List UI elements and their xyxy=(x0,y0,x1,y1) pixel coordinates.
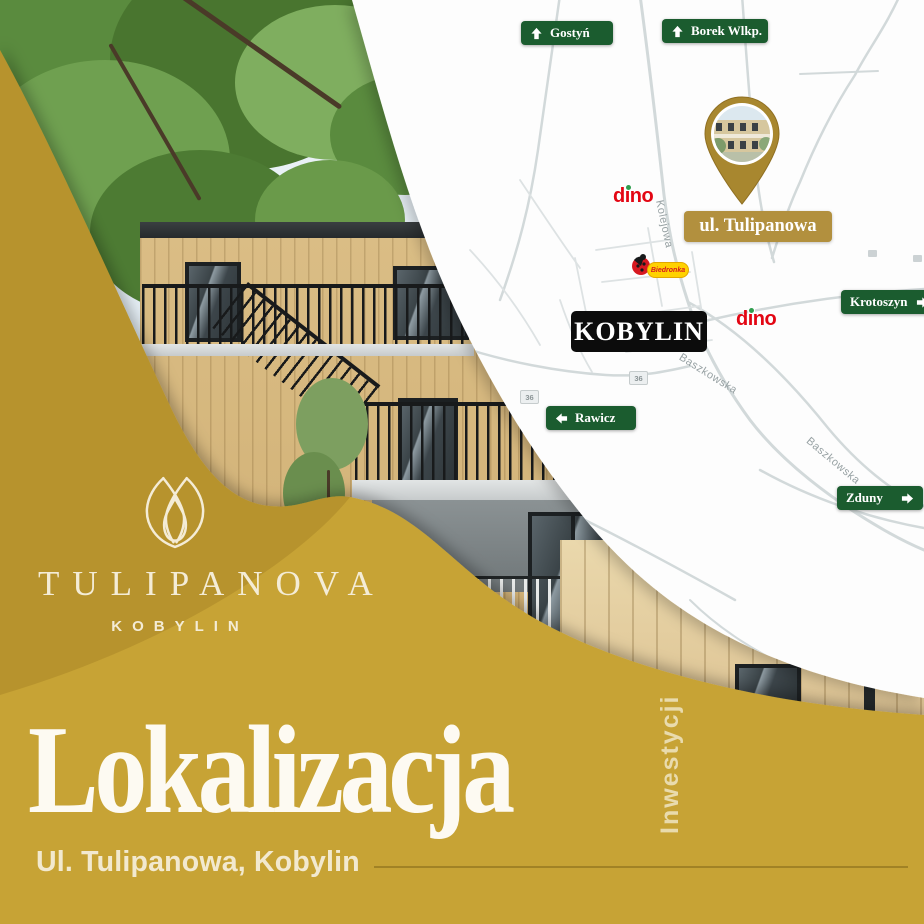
page-title: Lokalizacja xyxy=(28,708,511,834)
divider-line xyxy=(374,866,908,868)
poster: Gostyń Borek Wlkp. Krotoszyn Zduny Rawic… xyxy=(0,0,924,924)
tulip-icon xyxy=(135,472,215,550)
gold-content: TULIPANOVA KOBYLIN Lokalizacja Inwestycj… xyxy=(0,0,924,924)
brand-logo: TULIPANOVA KOBYLIN xyxy=(25,472,325,635)
brand-subtitle: KOBYLIN xyxy=(25,618,325,635)
side-label: Inwestycji xyxy=(656,698,685,834)
address: Ul. Tulipanowa, Kobylin xyxy=(36,846,360,879)
brand-name: TULIPANOVA xyxy=(25,564,325,604)
